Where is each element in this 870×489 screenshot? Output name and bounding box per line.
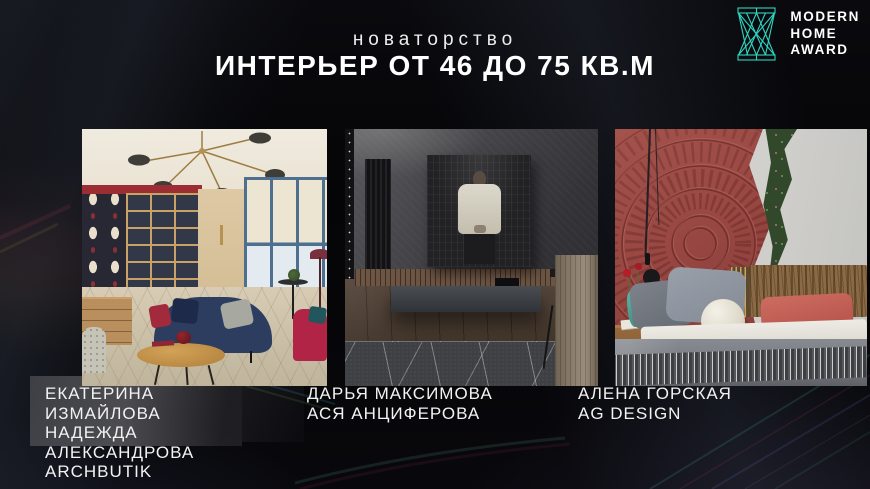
nominee-name-line: ДАРЬЯ МАКСИМОВА (307, 384, 493, 404)
hourglass-lattice-icon (734, 6, 779, 62)
nominee-names-1: ЕКАТЕРИНА ИЗМАЙЛОВА НАДЕЖДА АЛЕКСАНДРОВА… (45, 384, 194, 482)
sofa-leg (250, 351, 252, 363)
photo-dark-interior (345, 129, 598, 386)
nominee-name-line: ЕКАТЕРИНА (45, 384, 194, 404)
photo-bedroom (615, 129, 867, 386)
pendant-lamp (645, 253, 650, 265)
logo-word-3: AWARD (790, 42, 860, 59)
navy-pillow (171, 298, 199, 325)
black-radiator (365, 159, 391, 275)
nominee-name-line: АЛЕНА ГОРСКАЯ (578, 384, 732, 404)
console-decor-object (495, 278, 519, 286)
nominee-studio-line: ARCHBUTIK (45, 462, 194, 482)
award-slide: новаторство ИНТЕРЬЕР ОТ 46 ДО 75 КВ.М (0, 0, 870, 489)
artwork-figure-pants (464, 234, 495, 264)
red-flower (635, 263, 642, 270)
logo-word-1: MODERN (790, 9, 860, 26)
photo-living-room (82, 129, 327, 386)
logo-word-2: HOME (790, 26, 860, 43)
nominee-name-line: НАДЕЖДА (45, 423, 194, 443)
dark-red-vase (176, 331, 191, 344)
nominee-names-3: АЛЕНА ГОРСКАЯ AG DESIGN (578, 384, 732, 423)
teal-pillow (308, 306, 327, 324)
wall-sconce (220, 225, 223, 245)
artwork-man-in-white-shirt (427, 155, 531, 267)
nominee-name-line: АСЯ АНЦИФЕРОВА (307, 404, 493, 424)
nominee-name-line: ИЗМАЙЛОВА (45, 404, 194, 424)
red-flower (623, 269, 631, 277)
artwork-figure-hands (474, 225, 486, 233)
nominee-names-2: ДАРЬЯ МАКСИМОВА АСЯ АНЦИФЕРОВА (307, 384, 493, 423)
nominee-studio-line: AG DESIGN (578, 404, 732, 424)
modern-home-award-logo: MODERN HOME AWARD (734, 6, 860, 62)
light-wood-panel (555, 255, 598, 386)
red-pillow (148, 303, 172, 328)
nominee-name-line: АЛЕКСАНДРОВА (45, 443, 194, 463)
foil-highlight-patch-small (242, 386, 304, 442)
round-coffee-table (137, 343, 225, 367)
potted-plant (288, 269, 300, 281)
floating-console (391, 286, 541, 312)
light-armchair (82, 327, 106, 373)
logo-wordmark: MODERN HOME AWARD (790, 9, 860, 59)
